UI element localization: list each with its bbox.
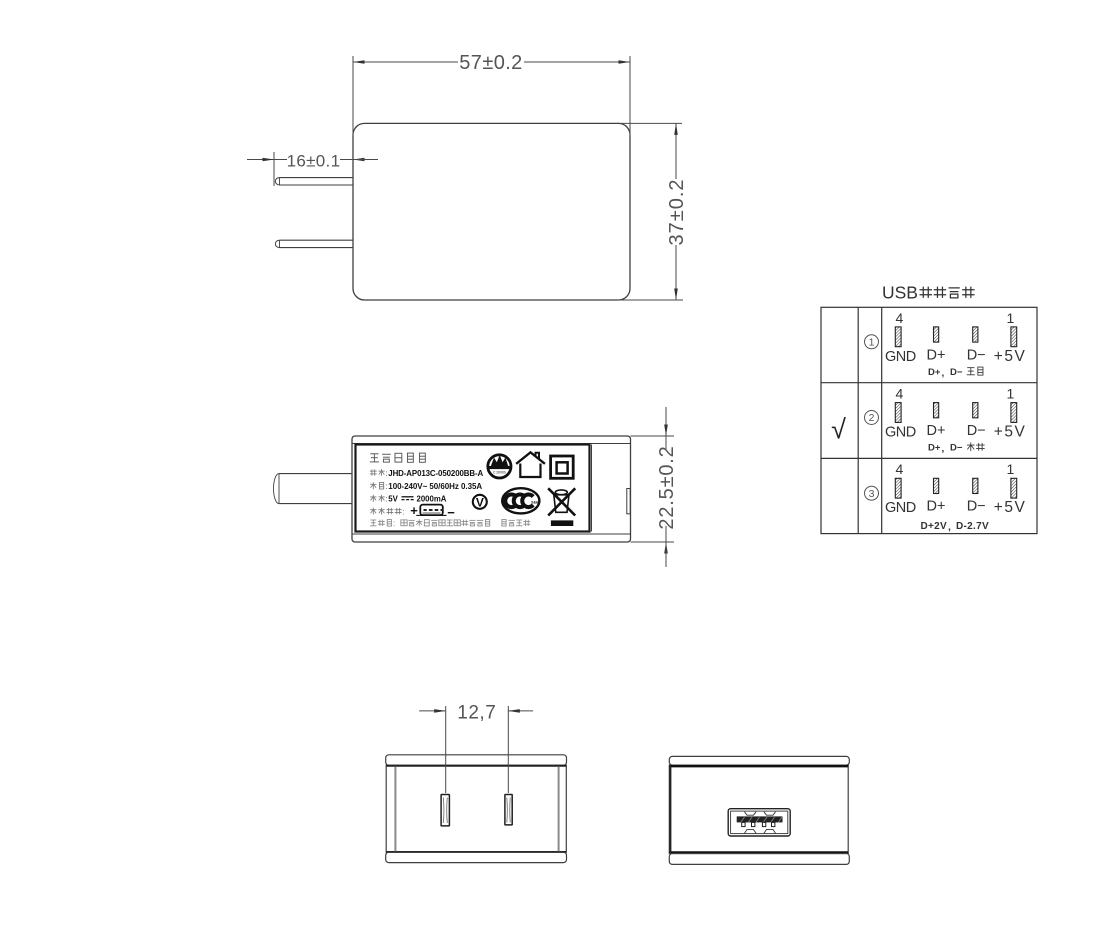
svg-text:D−: D− [967, 423, 986, 439]
svg-text:37±0.2: 37±0.2 [666, 178, 688, 245]
svg-text::: : [385, 469, 387, 478]
svg-text:S&E: S&E [531, 501, 539, 505]
svg-text:D+: D+ [927, 347, 946, 363]
svg-text::: : [385, 495, 387, 504]
svg-text::: : [403, 508, 405, 517]
svg-text:D+: D+ [928, 367, 941, 378]
svg-text:2: 2 [869, 412, 875, 424]
svg-text:1: 1 [1007, 310, 1015, 326]
svg-text:JHD-AP013C-050200BB-A: JHD-AP013C-050200BB-A [388, 469, 483, 478]
svg-text:4: 4 [896, 386, 904, 402]
svg-text:12,7: 12,7 [457, 702, 496, 723]
svg-text:−: − [447, 505, 455, 520]
svg-text:,: , [942, 444, 945, 455]
svg-text:D−: D− [967, 499, 986, 515]
svg-text:22.5±0.2: 22.5±0.2 [656, 445, 678, 529]
svg-text:D+: D+ [928, 443, 941, 454]
svg-text:,: , [942, 368, 945, 379]
svg-text:1: 1 [1007, 386, 1015, 402]
svg-text:4: 4 [896, 461, 904, 477]
svg-text:D+: D+ [927, 499, 946, 515]
svg-text:57±0.2: 57±0.2 [459, 52, 522, 74]
svg-text:D+2V: D+2V [921, 521, 948, 532]
svg-text:4: 4 [896, 310, 904, 326]
svg-text:1: 1 [869, 337, 875, 349]
svg-text:+5V: +5V [994, 348, 1027, 365]
svg-text:C 2000h: C 2000h [493, 471, 506, 475]
svg-text:16±0.1: 16±0.1 [287, 152, 341, 171]
svg-text:D−: D− [950, 443, 963, 454]
svg-text:+5V: +5V [994, 424, 1027, 441]
svg-text:GND: GND [885, 349, 916, 365]
svg-text:1: 1 [1007, 461, 1015, 477]
svg-text:D−: D− [967, 347, 986, 363]
svg-text:GND: GND [885, 500, 916, 516]
svg-text:5V: 5V [388, 495, 398, 504]
svg-text::: : [385, 482, 387, 491]
svg-text:+5V: +5V [994, 499, 1027, 516]
svg-text::: : [393, 519, 395, 528]
svg-text:D+: D+ [927, 423, 946, 439]
svg-text:GND: GND [885, 425, 916, 441]
svg-text:D-2.7V: D-2.7V [956, 521, 989, 532]
svg-text:100-240V~ 50/60Hz 0.35A: 100-240V~ 50/60Hz 0.35A [388, 482, 482, 491]
svg-text:3: 3 [869, 488, 875, 500]
svg-text:2000mA: 2000mA [417, 495, 447, 504]
svg-text:V: V [476, 496, 484, 510]
svg-text:√: √ [831, 415, 846, 445]
svg-text:USB: USB [882, 282, 918, 302]
svg-text:,: , [948, 521, 951, 533]
svg-text:D−: D− [950, 367, 963, 378]
